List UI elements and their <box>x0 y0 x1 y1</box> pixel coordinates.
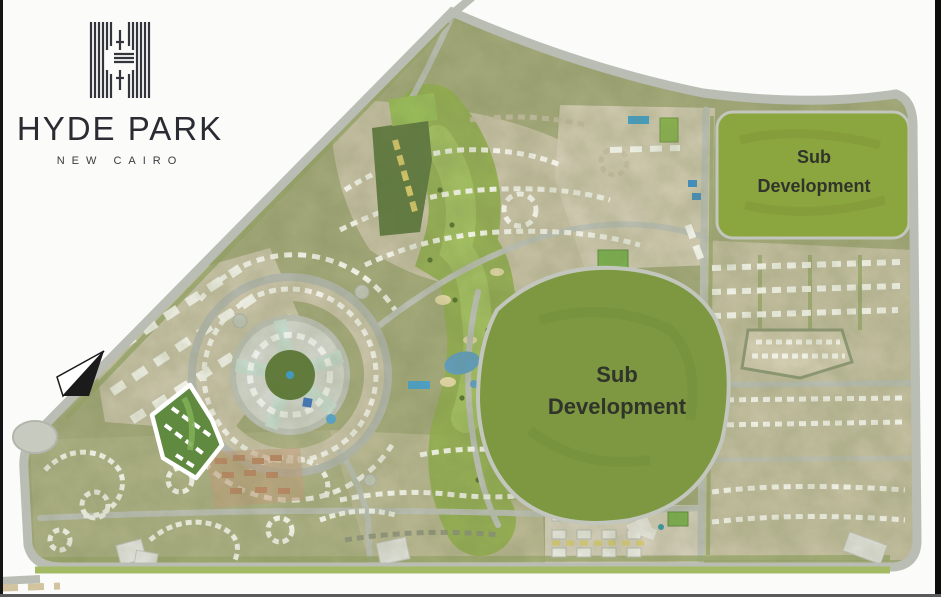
sub-development-center-label-line1: Sub <box>596 362 638 387</box>
sub-development-center-label-line2: Development <box>548 394 687 419</box>
right-border <box>935 0 941 597</box>
interchange <box>13 421 57 453</box>
sub-development-ne-label-line1: Sub <box>797 147 831 167</box>
brand-name: HYDE PARK <box>14 110 226 148</box>
brand-location: NEW CAIRO <box>14 155 226 167</box>
masterplan-screenshot: Sub Development Sub Development <box>0 0 941 597</box>
brand-logo: HYDE PARK NEW CAIRO <box>14 20 226 167</box>
north-access-road <box>452 0 476 14</box>
hyde-park-monogram <box>88 20 152 100</box>
sub-development-northeast[interactable]: Sub Development <box>717 112 909 238</box>
sub-development-ne-label-line2: Development <box>757 176 870 196</box>
left-border <box>0 0 3 597</box>
sub-development-center[interactable]: Sub Development <box>478 268 729 523</box>
